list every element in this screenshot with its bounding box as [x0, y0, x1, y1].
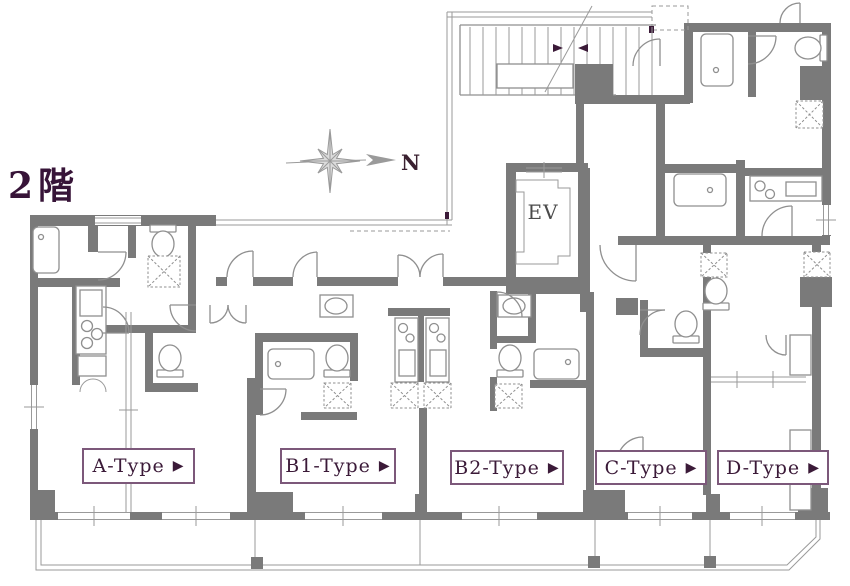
bathtub-b1 — [268, 349, 314, 379]
washer-pan — [495, 384, 522, 408]
toilet — [150, 225, 176, 257]
unit-link-b2-type[interactable]: B2-Type ▶ — [450, 450, 564, 485]
washer-pan — [796, 101, 823, 128]
bathtub-c — [674, 174, 726, 206]
bathtub-a — [33, 227, 59, 273]
washer-pan — [804, 252, 830, 277]
toilet — [497, 345, 523, 377]
unit-label-text: A-Type — [92, 455, 164, 477]
balcony — [36, 520, 820, 570]
floor-label: 2階 — [8, 168, 79, 204]
lavatory — [320, 295, 353, 317]
unit-link-a-type[interactable]: A-Type ▶ — [82, 448, 195, 484]
arrow-right-icon: ▶ — [379, 459, 391, 473]
stairs — [460, 6, 656, 104]
kitchen-a — [76, 286, 106, 392]
toilet — [324, 345, 350, 377]
unit-label-text: C-Type — [605, 457, 678, 479]
washer-pan — [424, 383, 451, 408]
closet — [790, 335, 811, 375]
kitchen-b1 — [395, 318, 418, 382]
unit-label-text: D-Type — [726, 457, 800, 479]
unit-link-c-type[interactable]: C-Type ▶ — [595, 450, 707, 485]
bathtub-b2 — [534, 349, 579, 379]
arrow-right-icon: ▶ — [548, 461, 560, 475]
toilet — [795, 35, 827, 61]
arrow-right-icon: ▶ — [686, 461, 698, 475]
toilet — [703, 278, 729, 310]
washer-pan — [324, 383, 351, 408]
compass-north-label: N — [401, 150, 420, 175]
floor-plan-drawing: EV N — [0, 0, 850, 586]
unit-link-d-type[interactable]: D-Type ▶ — [717, 450, 829, 485]
washer-pan — [701, 253, 727, 277]
toilet — [157, 345, 183, 377]
toilet — [673, 311, 699, 343]
bathtub-d — [701, 34, 733, 86]
compass-icon: N — [286, 129, 420, 193]
unit-label-text: B1-Type — [285, 455, 371, 477]
kitchen-d — [750, 176, 822, 201]
washer-pan — [391, 383, 418, 408]
floor-plan-page: EV N — [0, 0, 850, 586]
unit-link-b1-type[interactable]: B1-Type ▶ — [280, 448, 396, 484]
washer-pan — [148, 256, 180, 287]
kitchen-b2 — [426, 318, 449, 382]
corridor-railing — [216, 6, 688, 231]
arrow-right-icon: ▶ — [808, 461, 820, 475]
elevator: EV — [516, 162, 570, 264]
elevator-label: EV — [527, 200, 558, 224]
arrow-right-icon: ▶ — [173, 459, 185, 473]
unit-label-text: B2-Type — [454, 457, 540, 479]
